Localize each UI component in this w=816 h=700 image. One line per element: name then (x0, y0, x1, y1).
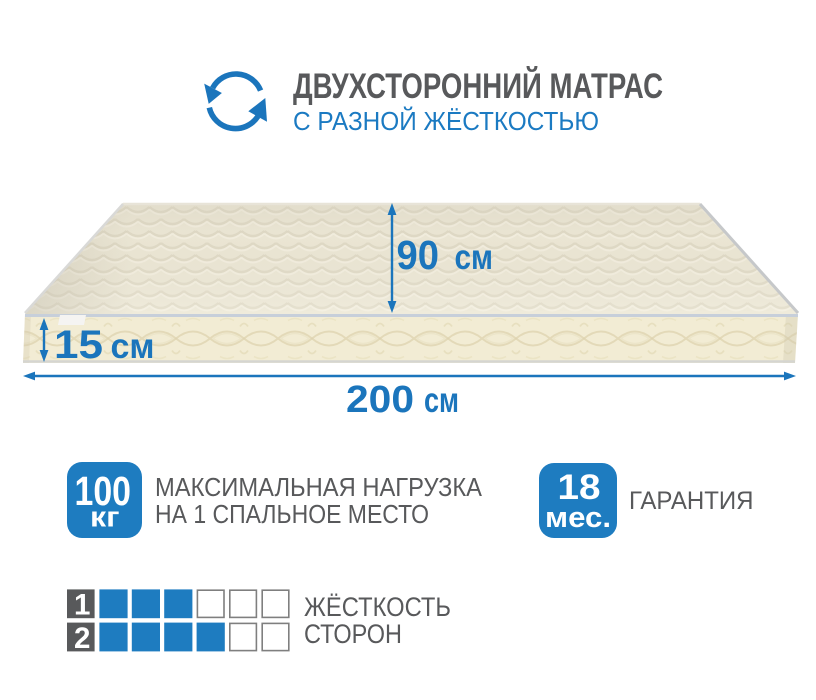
svg-text:см: см (111, 327, 155, 366)
svg-text:90: 90 (397, 232, 440, 278)
svg-text:1: 1 (74, 589, 90, 622)
svg-text:ДВУХСТОРОННИЙ МАТРАС: ДВУХСТОРОННИЙ МАТРАС (293, 66, 663, 106)
svg-text:кг: кг (90, 502, 120, 534)
svg-text:ЖЁСТКОСТЬ: ЖЁСТКОСТЬ (304, 592, 451, 622)
svg-text:СТОРОН: СТОРОН (304, 619, 402, 649)
svg-text:см: см (424, 381, 459, 420)
svg-text:200: 200 (346, 379, 414, 421)
svg-text:ГАРАНТИЯ: ГАРАНТИЯ (629, 487, 754, 515)
svg-text:МАКСИМАЛЬНАЯ НАГРУЗКА: МАКСИМАЛЬНАЯ НАГРУЗКА (155, 472, 483, 502)
svg-text:см: см (455, 238, 494, 277)
svg-text:С РАЗНОЙ ЖЁСТКОСТЬЮ: С РАЗНОЙ ЖЁСТКОСТЬЮ (293, 106, 599, 136)
svg-text:НА 1 СПАЛЬНОЕ МЕСТО: НА 1 СПАЛЬНОЕ МЕСТО (155, 499, 429, 529)
svg-text:15: 15 (54, 323, 103, 367)
svg-text:мес.: мес. (545, 502, 611, 534)
svg-text:2: 2 (74, 622, 90, 655)
